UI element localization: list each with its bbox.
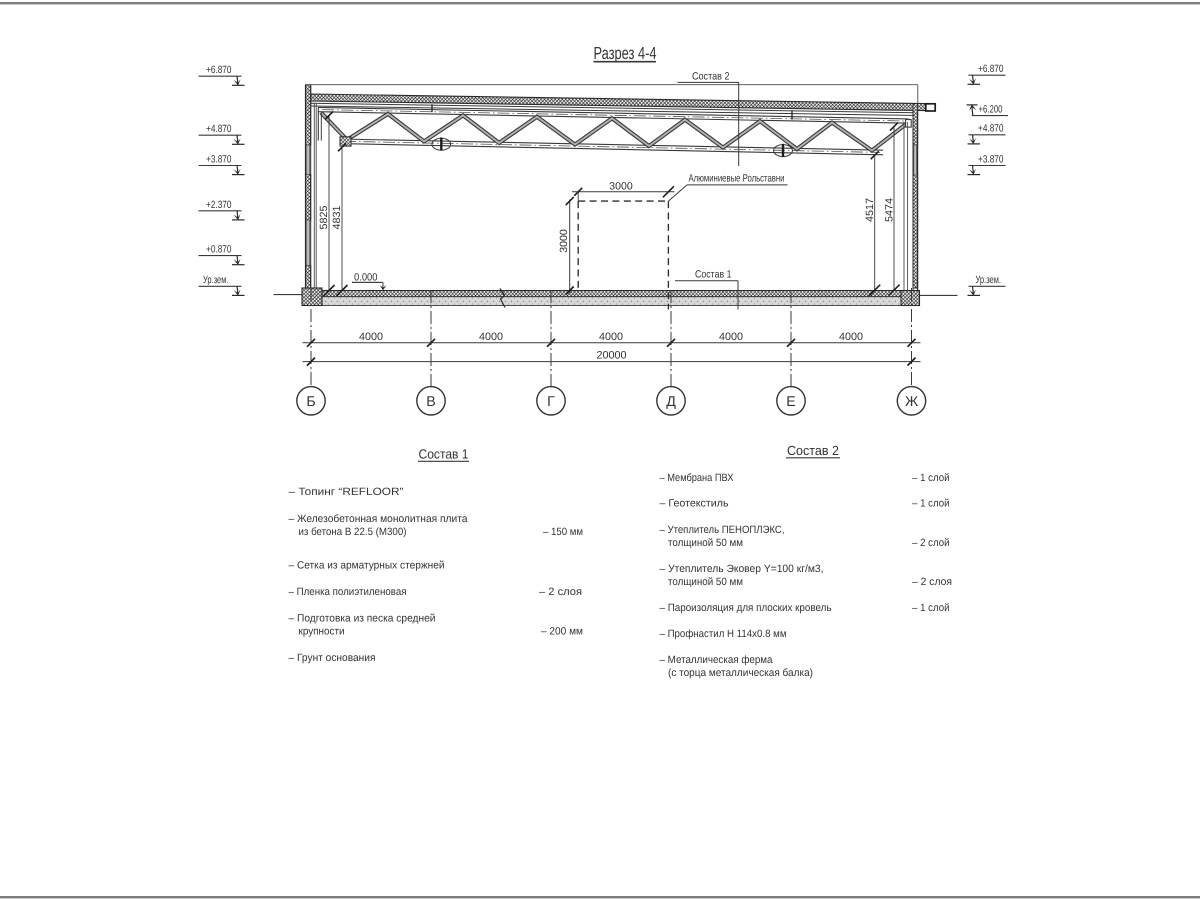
- svg-text:Е: Е: [786, 394, 795, 410]
- svg-text:Алюминиевые Рольставни: Алюминиевые Рольставни: [689, 173, 785, 185]
- svg-text:– Грунт основания: – Грунт основания: [289, 652, 376, 664]
- svg-text:– 1 слой: – 1 слой: [912, 472, 950, 484]
- svg-text:– 2 слоя: – 2 слоя: [912, 576, 952, 588]
- svg-text:5474: 5474: [883, 198, 895, 222]
- svg-text:Д: Д: [666, 394, 676, 410]
- svg-text:Разрез 4-4: Разрез 4-4: [594, 43, 657, 63]
- svg-text:– Пароизоляция для плоских кро: – Пароизоляция для плоских кровель: [660, 602, 832, 614]
- svg-text:3000: 3000: [558, 229, 570, 253]
- svg-text:+3.870: +3.870: [206, 154, 232, 166]
- svg-text:+2.370: +2.370: [206, 199, 232, 211]
- svg-text:4831: 4831: [331, 205, 343, 229]
- svg-text:Б: Б: [306, 394, 315, 410]
- svg-text:– Мембрана ПВХ: – Мембрана ПВХ: [660, 472, 734, 484]
- svg-text:– 2 слой: – 2 слой: [912, 537, 950, 549]
- svg-text:4000: 4000: [839, 331, 863, 343]
- svg-text:– 200 мм: – 200 мм: [541, 626, 583, 638]
- svg-text:– Железобетонная монолитная п: – Железобетонная монолитная плита: [289, 513, 468, 525]
- svg-text:Ур.зем.: Ур.зем.: [976, 274, 1002, 286]
- svg-text:крупности: крупности: [299, 626, 345, 638]
- svg-text:толщиной 50 мм: толщиной 50 мм: [668, 576, 743, 588]
- svg-text:– Геотекстиль: – Геотекстиль: [660, 498, 729, 510]
- svg-text:– 1 слой: – 1 слой: [912, 602, 950, 614]
- svg-text:4000: 4000: [359, 331, 383, 343]
- svg-text:Состав 1: Состав 1: [695, 269, 732, 281]
- svg-text:Г: Г: [547, 394, 555, 410]
- svg-text:3000: 3000: [609, 180, 633, 192]
- svg-text:– Профнастил Н 114х0.8 мм: – Профнастил Н 114х0.8 мм: [660, 628, 787, 640]
- svg-text:20000: 20000: [597, 350, 627, 362]
- svg-text:– Топинг “REFLOOR”: – Топинг “REFLOOR”: [289, 486, 405, 498]
- svg-text:– 2 слоя: – 2 слоя: [539, 586, 582, 598]
- svg-text:из бетона В 22.5 (М300): из бетона В 22.5 (М300): [299, 526, 407, 538]
- svg-text:толщиной 50 мм: толщиной 50 мм: [668, 537, 743, 549]
- svg-text:Состав 2: Состав 2: [692, 71, 730, 83]
- svg-text:В: В: [426, 394, 435, 410]
- svg-text:– 1 слой: – 1 слой: [912, 498, 950, 510]
- svg-text:4000: 4000: [479, 331, 503, 343]
- svg-text:+4.870: +4.870: [206, 123, 232, 135]
- svg-text:Состав 1: Состав 1: [419, 447, 469, 462]
- svg-text:– Пленка полиэтиленовая: – Пленка полиэтиленовая: [289, 586, 407, 598]
- svg-text:+0.870: +0.870: [206, 244, 232, 256]
- svg-text:4000: 4000: [599, 331, 623, 343]
- svg-text:Ж: Ж: [905, 394, 918, 410]
- svg-text:5825: 5825: [318, 205, 330, 229]
- svg-text:+4.870: +4.870: [978, 123, 1004, 135]
- svg-text:+6.200: +6.200: [979, 104, 1003, 116]
- svg-text:0.000: 0.000: [354, 271, 378, 283]
- svg-text:– Сетка из арматурных стержней: – Сетка из арматурных стержней: [289, 560, 445, 572]
- svg-text:+3.870: +3.870: [978, 154, 1004, 166]
- svg-text:– Подготовка из песка средней: – Подготовка из песка средней: [289, 613, 436, 625]
- svg-text:Ур.зем.: Ур.зем.: [203, 274, 229, 286]
- svg-text:– Утеплитель ПЕНОПЛЭКС,: – Утеплитель ПЕНОПЛЭКС,: [660, 524, 785, 536]
- svg-text:– Утеплитель Эковер Y=100 кг/м: – Утеплитель Эковер Y=100 кг/м3,: [660, 563, 824, 575]
- svg-text:(с торца металлическая балка): (с торца металлическая балка): [668, 667, 813, 679]
- svg-text:4000: 4000: [719, 331, 743, 343]
- svg-text:– 150 мм: – 150 мм: [543, 526, 583, 538]
- svg-text:+6.870: +6.870: [206, 64, 232, 76]
- svg-text:+6.870: +6.870: [978, 63, 1004, 75]
- svg-text:Состав 2: Состав 2: [787, 443, 839, 458]
- svg-text:4517: 4517: [864, 198, 876, 222]
- svg-text:– Металлическая ферма: – Металлическая ферма: [660, 654, 773, 666]
